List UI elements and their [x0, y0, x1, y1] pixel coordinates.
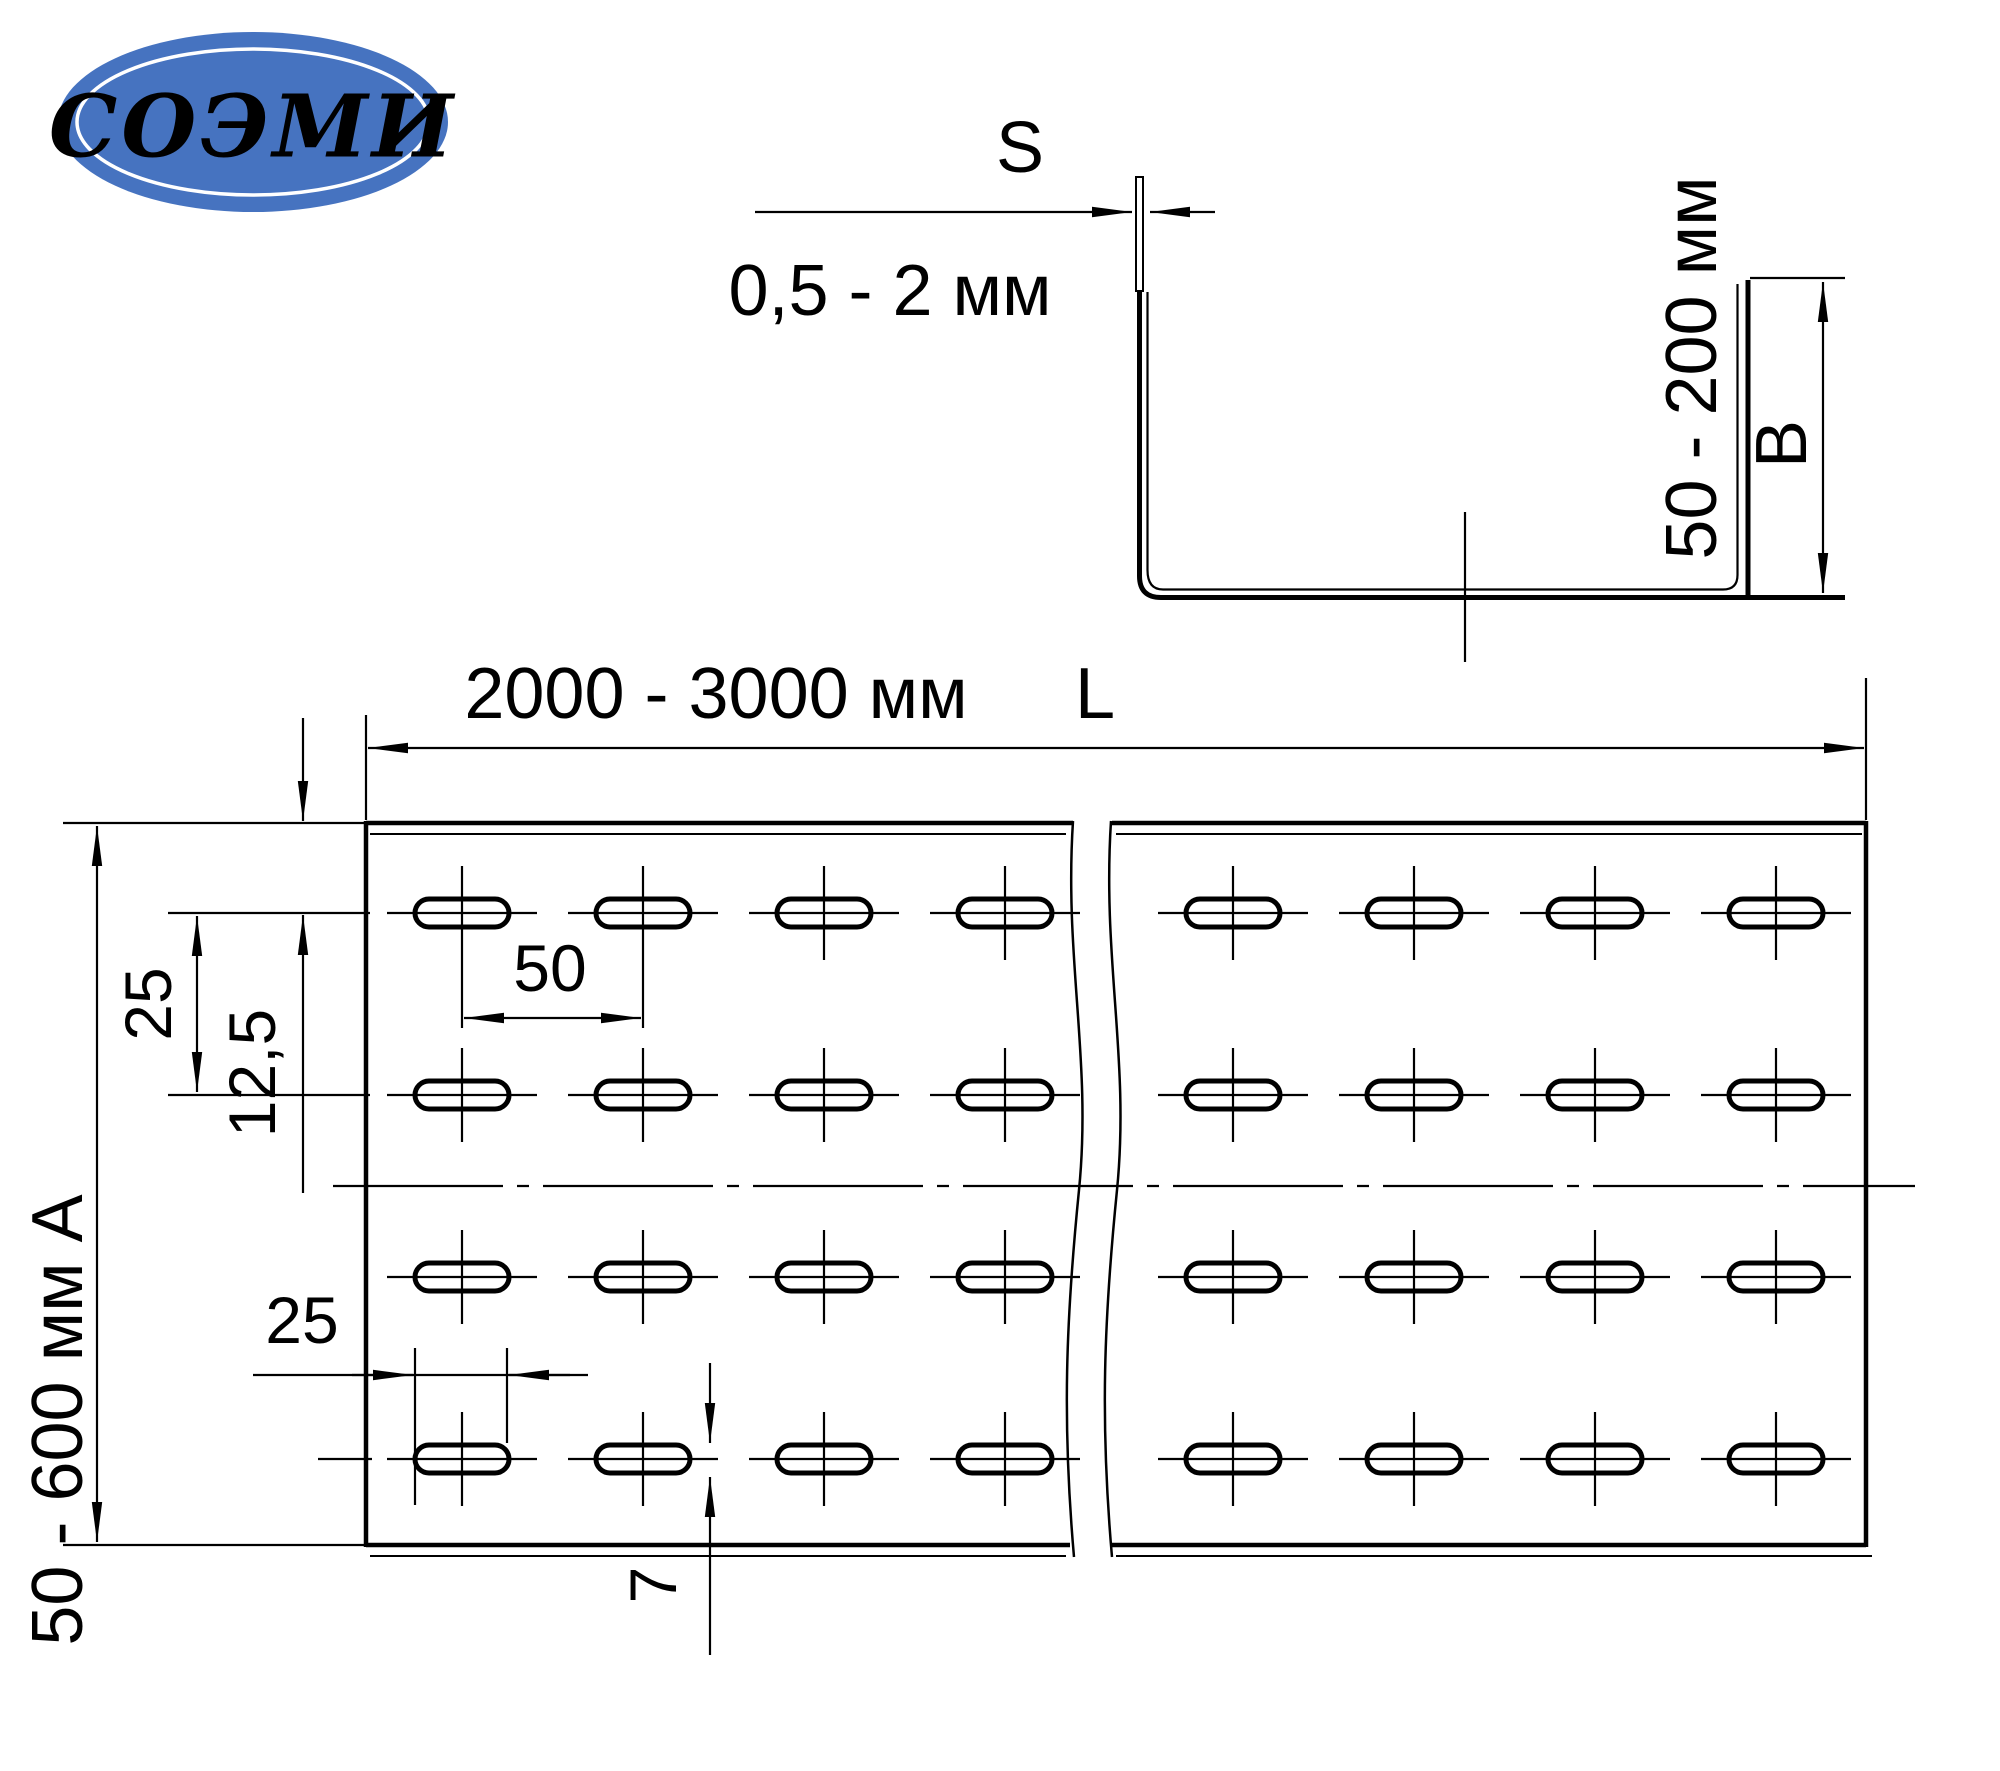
length-letter-label: L [1075, 654, 1115, 734]
slot [1520, 1230, 1670, 1324]
logo-text: СОЭМИ [49, 77, 457, 178]
channel-outer-contour [1140, 290, 1846, 598]
width-range-label: 50 - 600 мм А [18, 1194, 98, 1645]
slot-length-label: 25 [265, 1283, 338, 1357]
row-offset-label: 12,5 [215, 1009, 289, 1137]
slot [1158, 1230, 1308, 1324]
drawing-canvas: СОЭМИ S 0,5 - 2 мм 50 - 200 мм B 2000 - … [0, 0, 2000, 1771]
slot [568, 1048, 718, 1142]
slot [1520, 866, 1670, 960]
slot [568, 1412, 718, 1506]
slot-width-label: 7 [616, 1567, 690, 1604]
slot [387, 1230, 537, 1324]
break-wave-right [1105, 821, 1121, 1557]
slot [930, 866, 1080, 960]
slot [1339, 1048, 1489, 1142]
slot [1701, 866, 1851, 960]
soemi-logo: СОЭМИ [49, 32, 457, 212]
slot [930, 1230, 1080, 1324]
break-wave-left [1067, 821, 1083, 1557]
slot [930, 1412, 1080, 1506]
slot [749, 1230, 899, 1324]
length-range-label: 2000 - 3000 мм [464, 654, 967, 734]
thickness-letter-label: S [996, 108, 1044, 188]
slot [1701, 1048, 1851, 1142]
slot [1158, 1048, 1308, 1142]
slot [930, 1048, 1080, 1142]
height-letter-label: B [1742, 420, 1822, 468]
slot [1158, 1412, 1308, 1506]
slot [1701, 1230, 1851, 1324]
slot [387, 1412, 537, 1506]
thickness-range-label: 0,5 - 2 мм [728, 251, 1051, 331]
slot [749, 1412, 899, 1506]
col-pitch-label: 50 [513, 931, 586, 1005]
slot [568, 1230, 718, 1324]
slot [1339, 866, 1489, 960]
slot [749, 866, 899, 960]
slot [387, 1048, 537, 1142]
slot [568, 866, 718, 1028]
slot [1520, 1048, 1670, 1142]
slot [1158, 866, 1308, 960]
slot [1339, 1412, 1489, 1506]
slot [1339, 1230, 1489, 1324]
height-range-label: 50 - 200 мм [1652, 176, 1732, 559]
slot [1701, 1412, 1851, 1506]
slot [1520, 1412, 1670, 1506]
slot [749, 1048, 899, 1142]
channel-inner-contour [1148, 284, 1738, 590]
plan-view: 2000 - 3000 мм L 50 - 600 мм А 25 12,5 [18, 654, 1915, 1655]
technical-drawing: СОЭМИ S 0,5 - 2 мм 50 - 200 мм B 2000 - … [0, 0, 2000, 1771]
cross-section-view: S 0,5 - 2 мм 50 - 200 мм B [728, 108, 1845, 662]
row-pitch-label: 25 [111, 967, 185, 1040]
